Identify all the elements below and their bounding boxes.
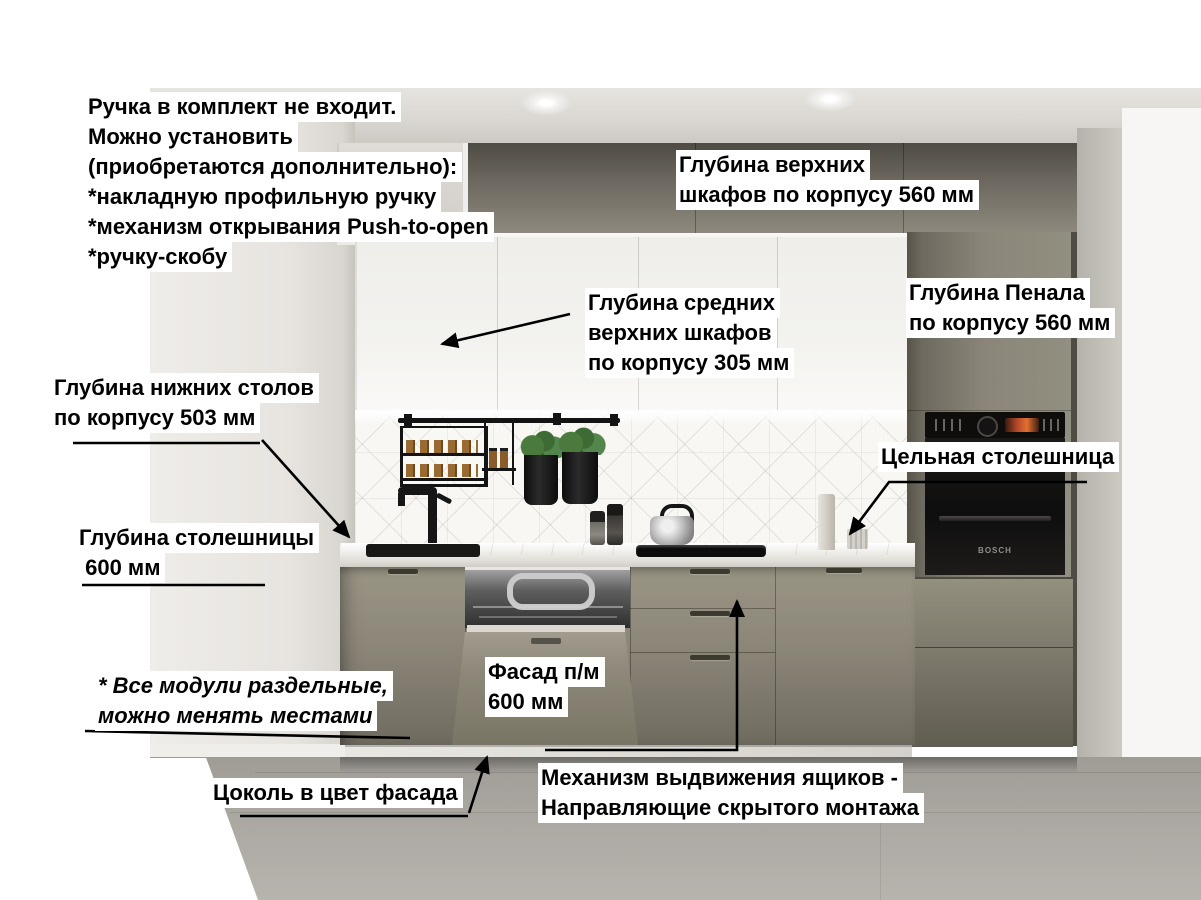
label-line: Цельная столешница xyxy=(878,442,1119,472)
arrow-plinth xyxy=(469,757,487,813)
label-line: Ручка в комплект не входит. xyxy=(85,92,401,122)
label-dishwasher-facade: Фасад п/м 600 мм xyxy=(485,657,605,717)
label-tall-cabinet-depth: Глубина Пенала по корпусу 560 мм xyxy=(906,278,1115,338)
label-line: 600 мм xyxy=(485,687,568,717)
label-line: по корпусу 305 мм xyxy=(585,348,794,378)
label-line: Глубина столешницы xyxy=(76,523,319,553)
label-line: Глубина средних xyxy=(585,288,780,318)
label-line: * Все модули раздельные, xyxy=(95,671,393,701)
label-line: Глубина верхних xyxy=(676,150,870,180)
label-solid-countertop: Цельная столешница xyxy=(878,442,1119,472)
label-line: *механизм открывания Push-to-open xyxy=(85,212,494,242)
label-line: *ручку-скобу xyxy=(85,242,232,272)
label-middle-cabinets-depth: Глубина средних верхних шкафов по корпус… xyxy=(585,288,794,378)
label-line: Глубина Пенала xyxy=(906,278,1090,308)
label-countertop-depth: Глубина столешницы 600 мм xyxy=(76,523,319,583)
label-handle-note: Ручка в комплект не входит. Можно устано… xyxy=(85,92,494,272)
arrow-middle-cabinet-depth xyxy=(442,314,570,344)
label-line: Глубина нижних столов xyxy=(51,373,319,403)
label-drawer-mechanism: Механизм выдвижения ящиков - Направляющи… xyxy=(538,763,924,823)
label-line: Цоколь в цвет фасада xyxy=(210,778,463,808)
label-line: можно менять местами xyxy=(95,701,377,731)
arrow-solid-countertop xyxy=(850,482,1087,534)
label-line: (приобретаются дополнительно): xyxy=(85,152,462,182)
label-line: Направляющие скрытого монтажа xyxy=(538,793,924,823)
label-line: 600 мм xyxy=(76,553,165,583)
label-plinth-note: Цоколь в цвет фасада xyxy=(210,778,463,808)
label-line: верхних шкафов xyxy=(585,318,777,348)
label-upper-cabinets-depth: Глубина верхних шкафов по корпусу 560 мм xyxy=(676,150,979,210)
kitchen-annotated-render: BOSCH xyxy=(0,0,1201,900)
label-line: Фасад п/м xyxy=(485,657,605,687)
label-base-cabinets-depth: Глубина нижних столов по корпусу 503 мм xyxy=(51,373,319,433)
label-line: *накладную профильную ручку xyxy=(85,182,441,212)
label-line: Механизм выдвижения ящиков - xyxy=(538,763,903,793)
line-modules-underline xyxy=(85,731,410,738)
label-modules-note: * Все модули раздельные, можно менять ме… xyxy=(95,671,393,731)
label-line: по корпусу 560 мм xyxy=(906,308,1115,338)
label-line: шкафов по корпусу 560 мм xyxy=(676,180,979,210)
label-line: Можно установить xyxy=(85,122,298,152)
label-line: по корпусу 503 мм xyxy=(51,403,260,433)
